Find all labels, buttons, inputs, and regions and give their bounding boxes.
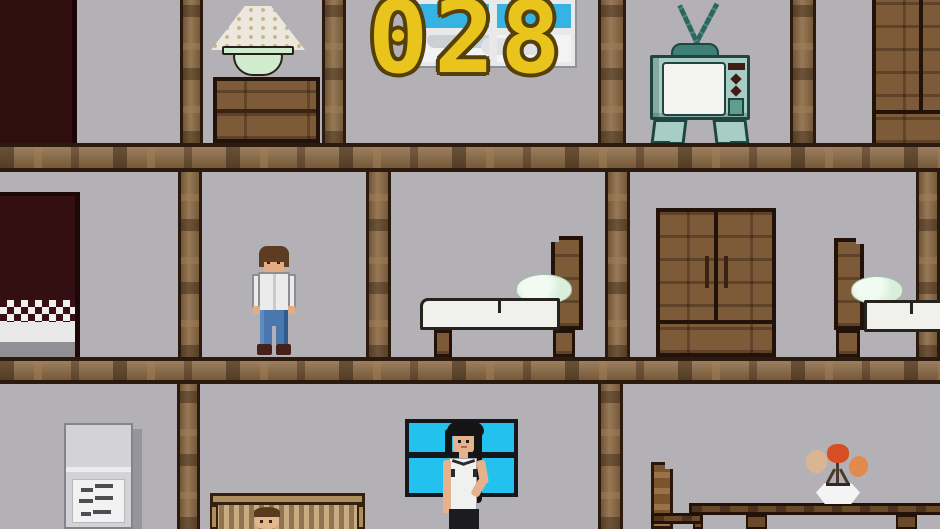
woman-hair (445, 429, 452, 457)
tv-screen (662, 62, 726, 116)
wardrobe-handle (705, 256, 709, 288)
note-on-fridge (72, 479, 125, 523)
woman-eye (466, 440, 469, 443)
headboard-notch (551, 236, 559, 242)
jeans-gap (272, 326, 276, 344)
table-leg (896, 515, 917, 529)
crib-rail (210, 493, 365, 505)
lamp-shade (211, 6, 305, 50)
television (640, 0, 760, 148)
chair-back-notch (665, 462, 673, 469)
vase-of-flowers (806, 444, 868, 504)
tank-armhole (451, 469, 455, 477)
lamp-base-bowl (233, 53, 283, 76)
woman-hair (447, 422, 484, 436)
beam-vertical (598, 384, 623, 529)
bed-mattress (864, 300, 940, 332)
bed-leg (553, 330, 575, 357)
chair (651, 462, 707, 529)
man-shoe (276, 344, 291, 355)
wardrobe-drawer-line (660, 320, 772, 324)
man-shirt (258, 272, 290, 312)
dresser (213, 77, 320, 143)
bed-with-pillow (834, 238, 940, 357)
woman-eye (458, 440, 461, 443)
vase (816, 483, 860, 504)
beam-vertical (605, 172, 630, 357)
mattress-seam (498, 298, 501, 313)
shirt-placket (273, 274, 276, 310)
bed-sheet (0, 322, 75, 342)
bed-leg (836, 330, 860, 357)
blanket (0, 192, 80, 300)
beam-vertical (598, 0, 626, 143)
wardrobe (872, 0, 940, 147)
baby-eye (269, 520, 272, 523)
beam-vertical (790, 0, 816, 143)
beam-vertical (178, 172, 202, 357)
mattress-seam (910, 300, 913, 314)
beam-vertical (322, 0, 346, 143)
beam-floor-1 (0, 143, 940, 172)
wardrobe-door-divider (714, 212, 718, 320)
man-hair (259, 256, 264, 267)
crib-post (357, 505, 365, 529)
wardrobe-drawer-line (876, 110, 940, 114)
fridge-freezer-line (66, 467, 131, 472)
bed-leg (434, 330, 452, 357)
wardrobe-door-divider (919, 0, 923, 110)
fridge-body (64, 423, 133, 529)
dark-doorway (0, 0, 77, 143)
man-hair (284, 256, 289, 267)
man-arm (252, 274, 260, 308)
bed-base (0, 342, 75, 357)
tank-armhole (473, 469, 477, 477)
note-scribble (93, 510, 111, 514)
beam-vertical (177, 384, 200, 529)
blanket-checker-trim (0, 300, 75, 322)
baby-hair (254, 507, 280, 517)
man-hand (253, 306, 260, 314)
bed-edge (75, 192, 80, 357)
dresser-drawer-line (217, 109, 316, 113)
beam-vertical (366, 172, 391, 357)
beam-vertical (180, 0, 203, 143)
tv-vent (728, 98, 744, 116)
chair-leg (693, 522, 703, 529)
bed-dark-blanket (0, 192, 80, 357)
standing-woman (441, 421, 491, 529)
table-leg (746, 515, 767, 529)
man-hand (288, 306, 295, 314)
woman-mouth (461, 446, 467, 448)
woman-tank-top (449, 458, 477, 511)
fridge-side-shadow (132, 429, 142, 529)
dining-table (689, 503, 940, 515)
note-scribble (81, 488, 93, 492)
woman-pants (449, 509, 479, 529)
refrigerator (64, 423, 142, 529)
woman-arm (443, 460, 451, 506)
bed-with-pillow (420, 236, 583, 357)
tv-panel (728, 63, 745, 70)
game-screen[interactable]: 028 (0, 0, 940, 529)
flower-orange (847, 454, 871, 479)
crib-slats (214, 505, 361, 529)
crib-post (210, 505, 218, 529)
man-jeans (260, 310, 288, 344)
crib-with-baby (210, 493, 365, 529)
standing-man (252, 246, 296, 357)
headboard-notch (856, 238, 864, 244)
man-shoe (257, 344, 272, 355)
wardrobe (656, 208, 776, 357)
score-counter: 028 (368, 0, 588, 88)
baby-eye (260, 520, 263, 523)
vase-mouth (826, 483, 850, 486)
note-scribble (95, 496, 113, 500)
wardrobe-handle (724, 256, 728, 288)
bed-mattress (420, 298, 560, 330)
flower-tan (806, 450, 827, 473)
flower-red (827, 444, 849, 463)
note-scribble (81, 512, 91, 516)
tank-strap (462, 459, 475, 466)
beam-floor-2 (0, 357, 940, 384)
man-arm (288, 274, 296, 308)
note-scribble (79, 499, 93, 503)
note-scribble (95, 484, 113, 488)
